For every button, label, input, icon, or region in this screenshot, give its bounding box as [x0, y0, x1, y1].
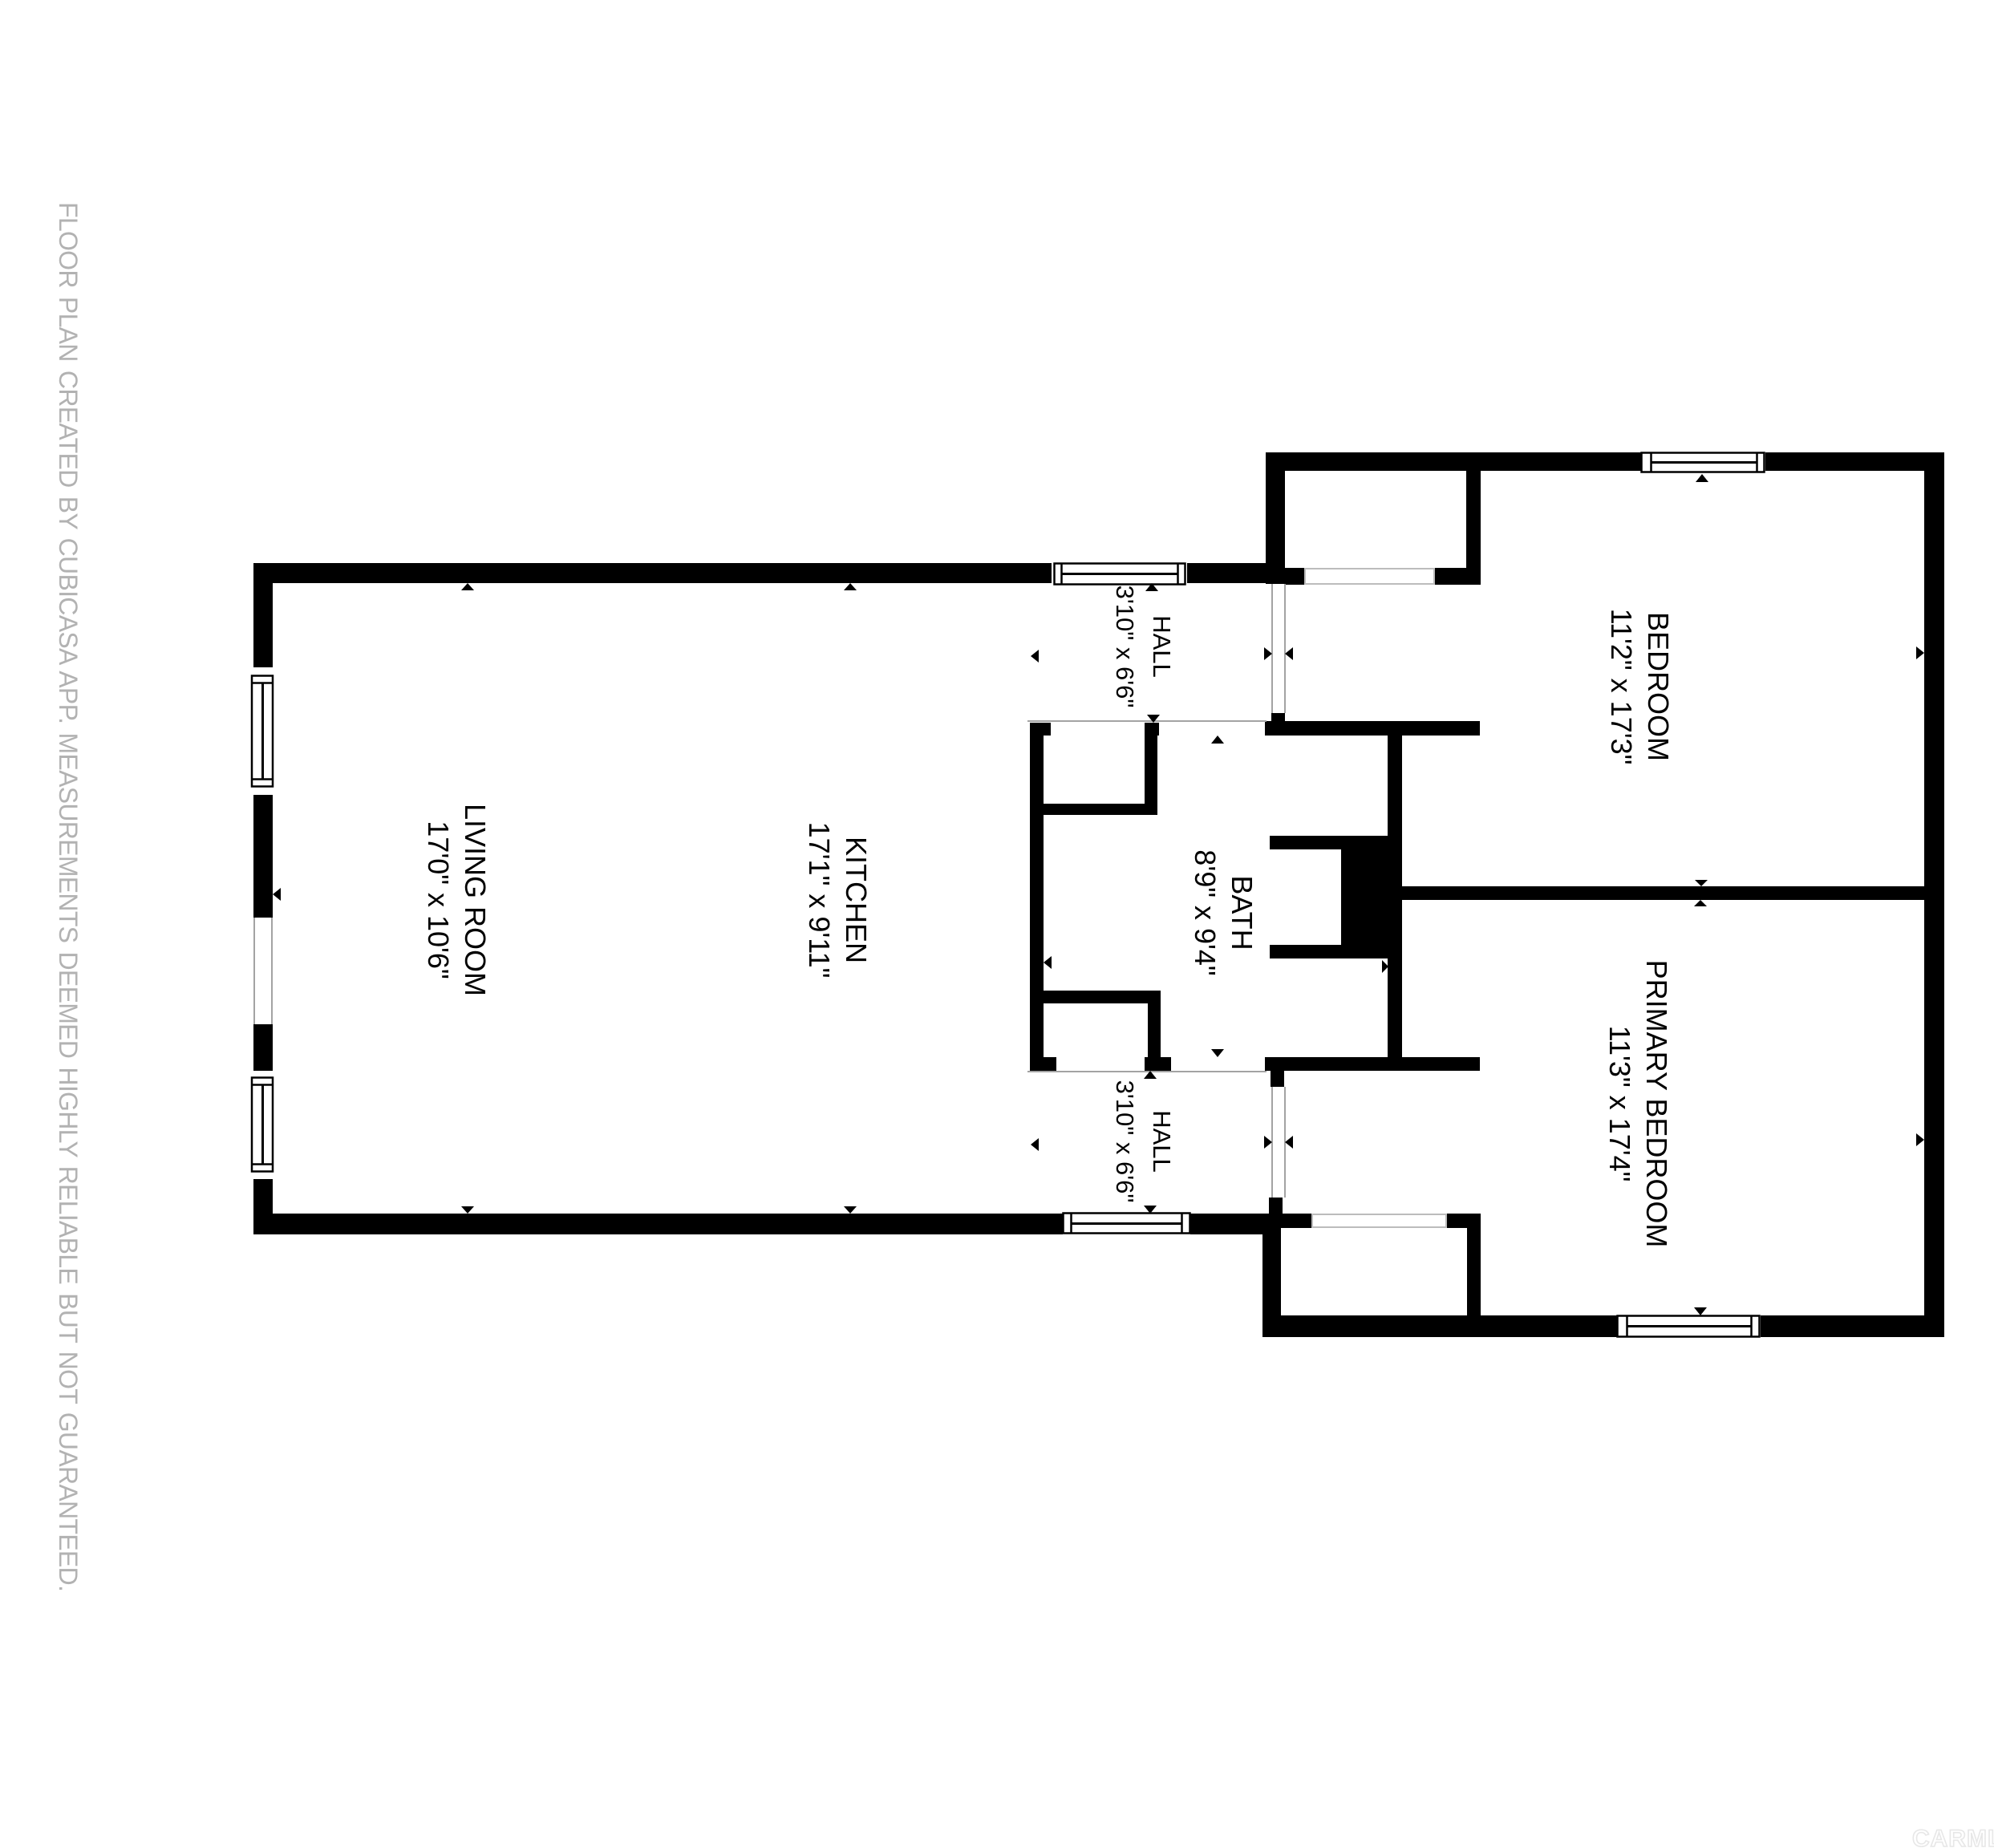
svg-text:17'1" x 9'11": 17'1" x 9'11"	[803, 822, 836, 979]
svg-text:BEDROOM: BEDROOM	[1642, 612, 1675, 761]
svg-text:KITCHEN: KITCHEN	[840, 837, 873, 963]
svg-text:HALL: HALL	[1148, 1110, 1176, 1173]
svg-text:FLOOR PLAN CREATED BY CUBICASA: FLOOR PLAN CREATED BY CUBICASA APP. MEAS…	[54, 202, 83, 1591]
svg-text:3'10" x 6'6": 3'10" x 6'6"	[1111, 586, 1139, 708]
svg-text:CARMLS, INC: CARMLS, INC	[1912, 1826, 1994, 1848]
svg-text:LIVING ROOM: LIVING ROOM	[459, 804, 492, 996]
svg-text:BATH: BATH	[1226, 875, 1258, 950]
svg-text:17'0" x 10'6": 17'0" x 10'6"	[422, 821, 455, 979]
svg-text:3'10" x 6'6": 3'10" x 6'6"	[1111, 1080, 1139, 1203]
svg-text:11'2" x 17'3": 11'2" x 17'3"	[1605, 609, 1638, 765]
svg-text:PRIMARY BEDROOM: PRIMARY BEDROOM	[1640, 960, 1673, 1248]
svg-text:8'9" x 9'4": 8'9" x 9'4"	[1189, 849, 1222, 975]
svg-text:11'3" x 17'4": 11'3" x 17'4"	[1603, 1026, 1636, 1182]
svg-text:HALL: HALL	[1148, 615, 1176, 678]
